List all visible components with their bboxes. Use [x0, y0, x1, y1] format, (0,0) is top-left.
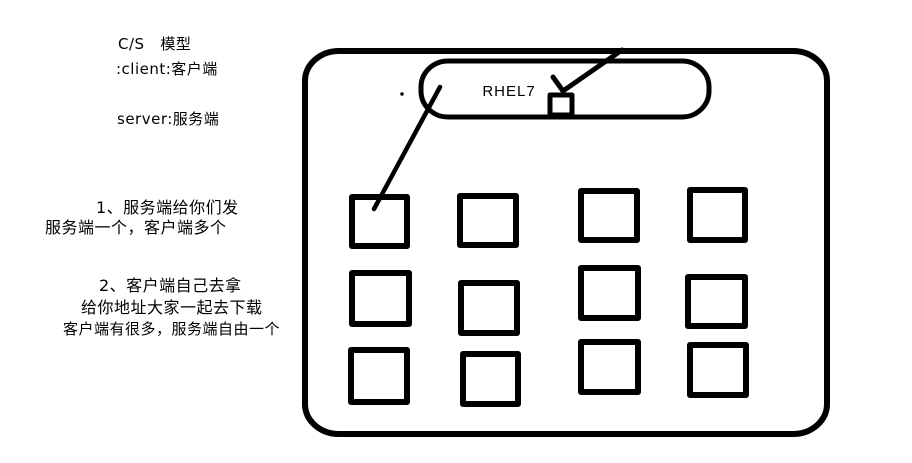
- client-box: [581, 268, 638, 318]
- client-box: [690, 345, 746, 395]
- server-port-box: [550, 95, 572, 115]
- client-box: [690, 190, 745, 240]
- ink-dot: [400, 92, 403, 95]
- client-box: [352, 197, 407, 246]
- client-box: [460, 196, 516, 245]
- cs-model-sketch: RHEL7: [0, 0, 912, 463]
- client-box: [581, 342, 638, 392]
- client-box: [463, 354, 518, 404]
- arrow-to-server-port: [553, 50, 622, 91]
- client-box: [461, 283, 517, 333]
- client-box: [688, 277, 745, 326]
- client-box: [352, 273, 409, 324]
- client-box: [351, 350, 407, 402]
- line-server-to-client: [374, 87, 440, 209]
- server-os-label: RHEL7: [482, 83, 535, 100]
- sketch-canvas: C/S 模型 :client:客户端 server:服务端 1、服务端给你们发 …: [0, 0, 912, 463]
- client-box: [581, 191, 637, 240]
